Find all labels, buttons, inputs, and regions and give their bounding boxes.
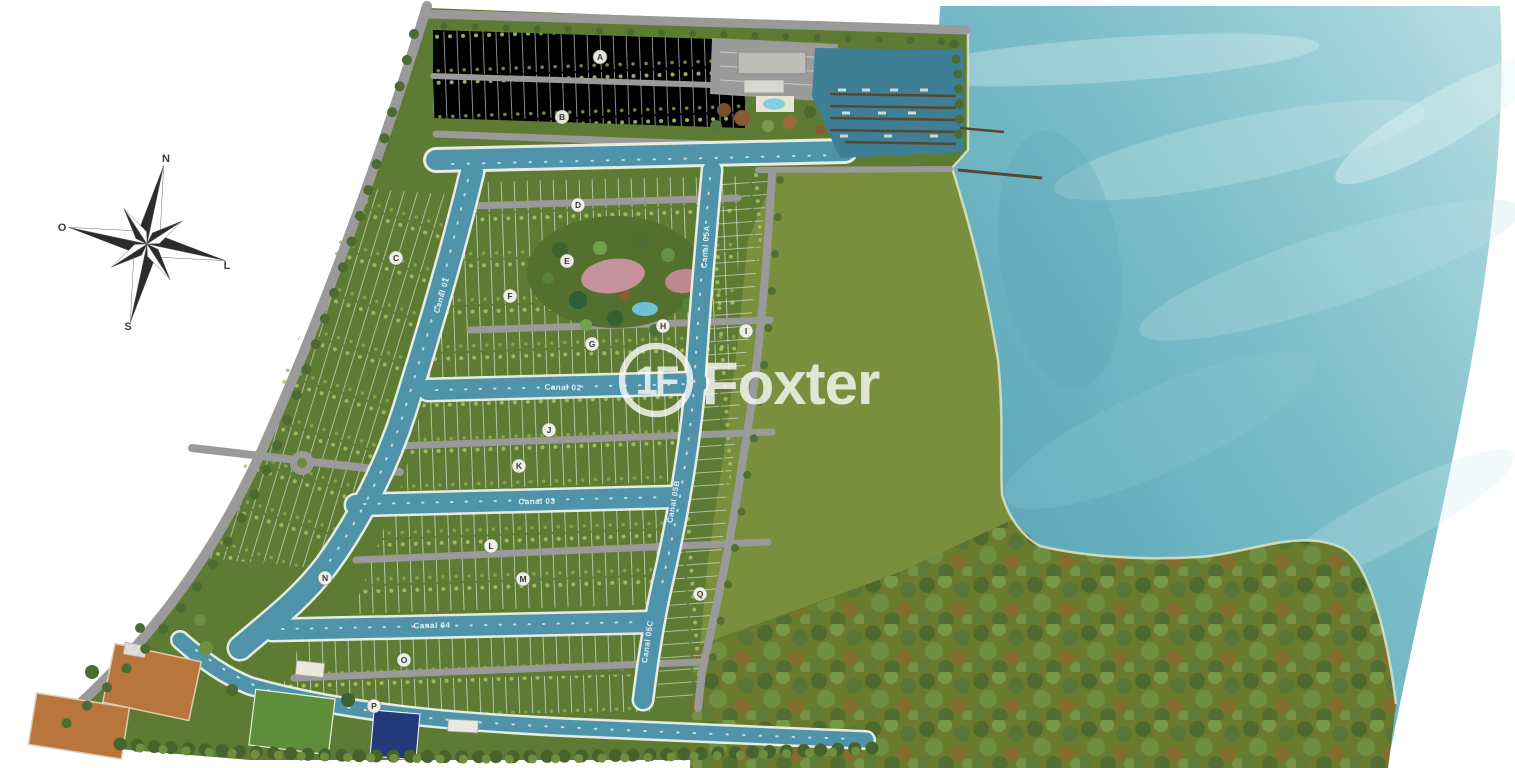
canal-03-label: Canal 03 [518,497,555,507]
svg-text:I: I [745,326,747,336]
road-shore [758,169,950,170]
block-marker: A [593,50,607,64]
block-marker: N [318,571,332,585]
marina-basin [812,48,963,158]
canal-04 [272,622,652,630]
masterplan-screenshot: A B C D E F G H I J K L M N O P Q Canal … [0,0,1515,768]
svg-text:Q: Q [697,589,704,599]
block-marker: L [484,539,498,553]
canal-03 [356,497,676,505]
svg-text:C: C [393,253,399,263]
svg-text:N: N [322,573,328,583]
masterplan-map: A B C D E F G H I J K L M N O P Q Canal … [0,0,1515,768]
block-marker: C [389,251,403,265]
block-marker: I [739,324,753,338]
svg-text:A: A [597,52,603,62]
compass-rose: N O L S [52,149,242,339]
block-marker: J [542,423,556,437]
club-pool [763,99,785,110]
block-marker: G [585,337,599,351]
block-marker: F [503,289,517,303]
block-marker: K [512,459,526,473]
canal-top [436,151,845,160]
compass-north-label: N [162,153,170,165]
foxter-brand-text: Foxter [702,350,880,417]
canal-02-label: Canal 02 [545,383,582,393]
club-building-main [738,52,806,74]
block-marker: D [571,198,585,212]
canal-04-label: Canal 04 [413,621,450,631]
svg-text:M: M [519,574,526,584]
block-marker: O [397,653,411,667]
compass-south-label: S [124,321,131,333]
svg-text:B: B [559,112,565,122]
compass-star [52,149,242,339]
compass-east-label: L [224,260,231,272]
svg-text:F: F [507,291,512,301]
svg-text:K: K [516,461,523,471]
svg-text:O: O [401,655,408,665]
block-marker: H [656,319,670,333]
svg-text:L: L [488,541,493,551]
block-marker: P [367,699,381,713]
svg-text:E: E [564,256,570,266]
block-marker: E [560,254,574,268]
svg-text:H: H [660,321,666,331]
svg-text:G: G [589,339,596,349]
sports-building-1 [295,661,324,678]
sports-building-3 [448,719,479,733]
club-building-annex [744,80,784,93]
entrance-roundabout-island [297,458,307,468]
svg-text:D: D [575,200,581,210]
block-marker: B [555,110,569,124]
compass-west-label: O [58,222,67,234]
block-marker: Q [693,587,707,601]
foxter-logo-monogram: 1F [636,359,678,403]
svg-text:P: P [371,701,377,711]
soccer-field [249,689,335,754]
park-pond [632,302,658,316]
block-marker: M [516,572,530,586]
svg-text:J: J [547,425,552,435]
